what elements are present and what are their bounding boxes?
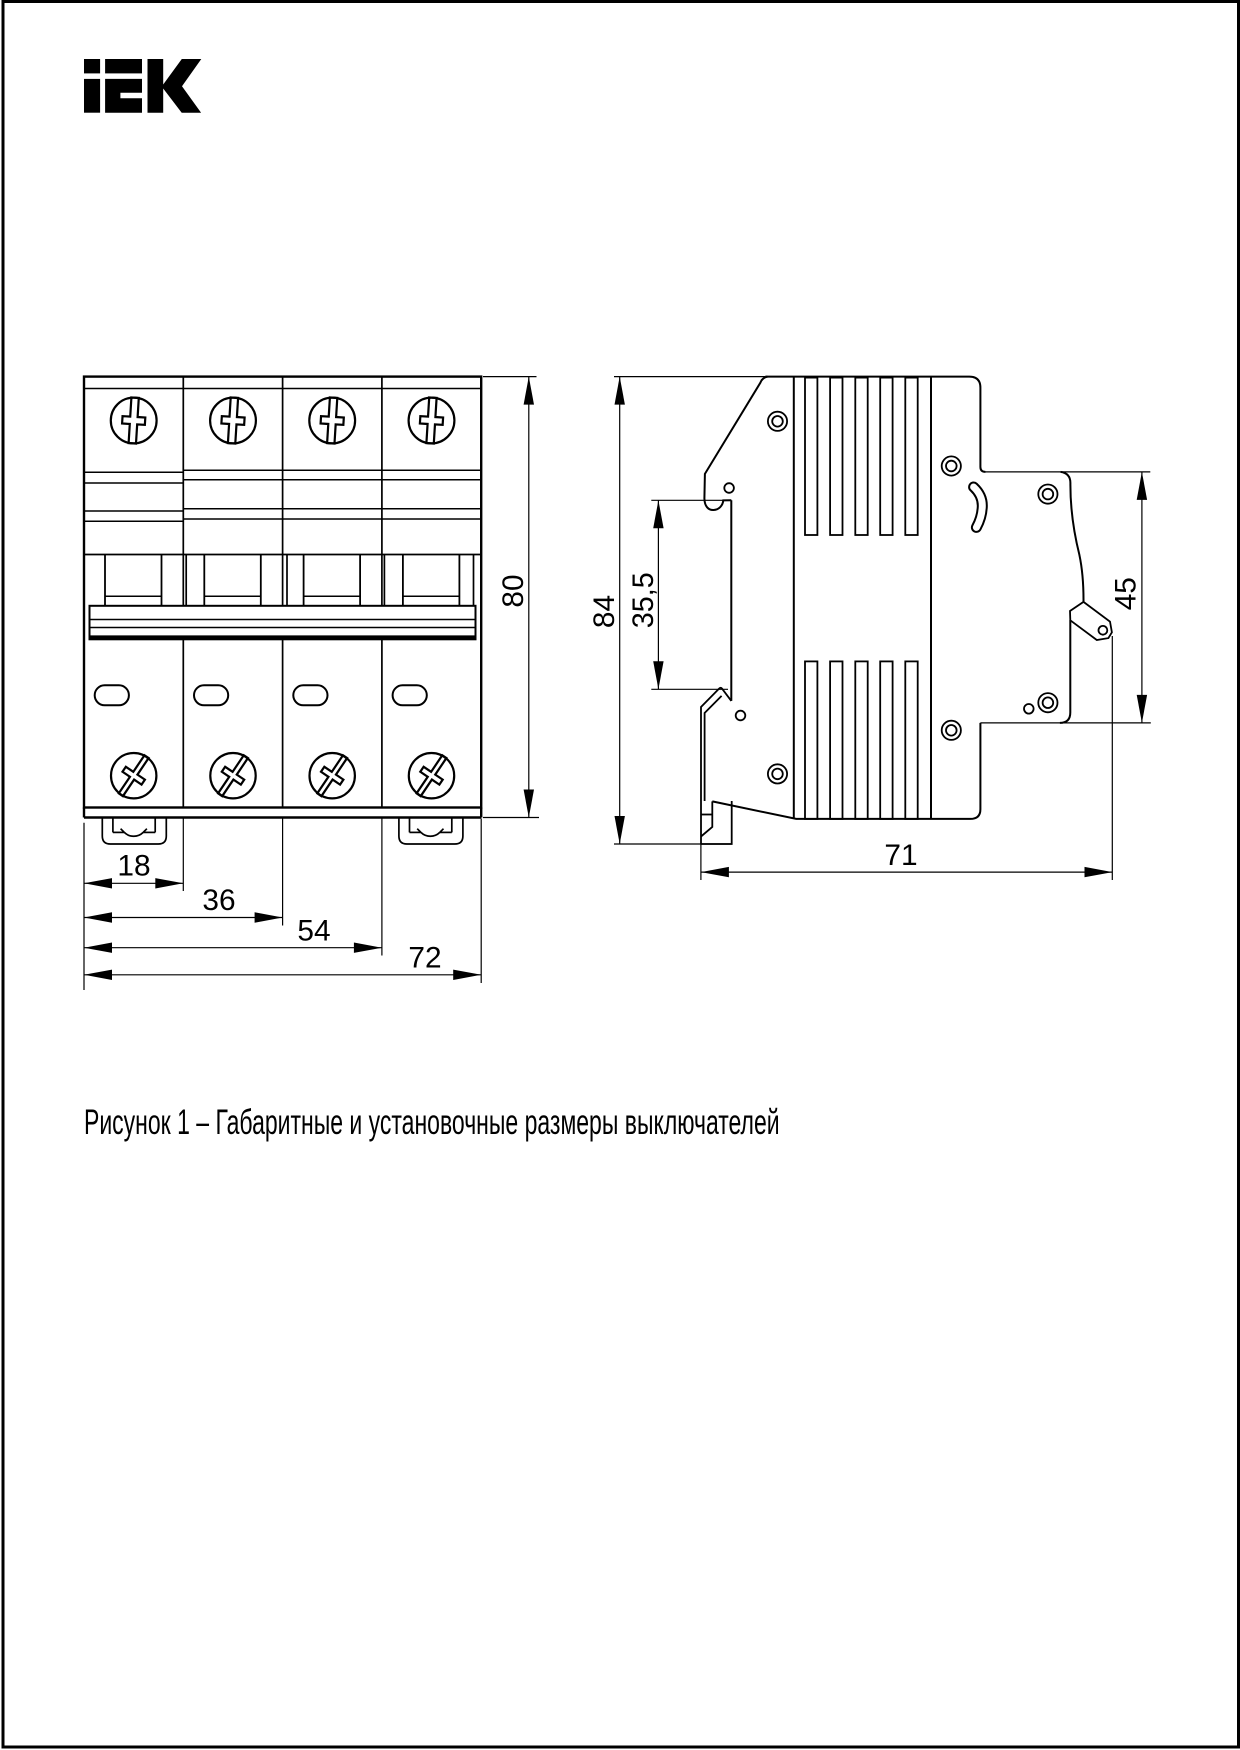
svg-text:71: 71 bbox=[884, 839, 917, 872]
svg-text:36: 36 bbox=[202, 884, 235, 917]
svg-text:80: 80 bbox=[497, 574, 530, 607]
svg-text:54: 54 bbox=[297, 914, 330, 947]
svg-text:72: 72 bbox=[408, 942, 441, 975]
svg-text:18: 18 bbox=[117, 850, 150, 883]
svg-text:35,5: 35,5 bbox=[627, 572, 660, 628]
svg-text:84: 84 bbox=[588, 595, 621, 628]
svg-text:Рисунок 1 – Габаритные и устан: Рисунок 1 – Габаритные и установочные ра… bbox=[84, 1103, 780, 1142]
svg-text:45: 45 bbox=[1110, 577, 1143, 610]
